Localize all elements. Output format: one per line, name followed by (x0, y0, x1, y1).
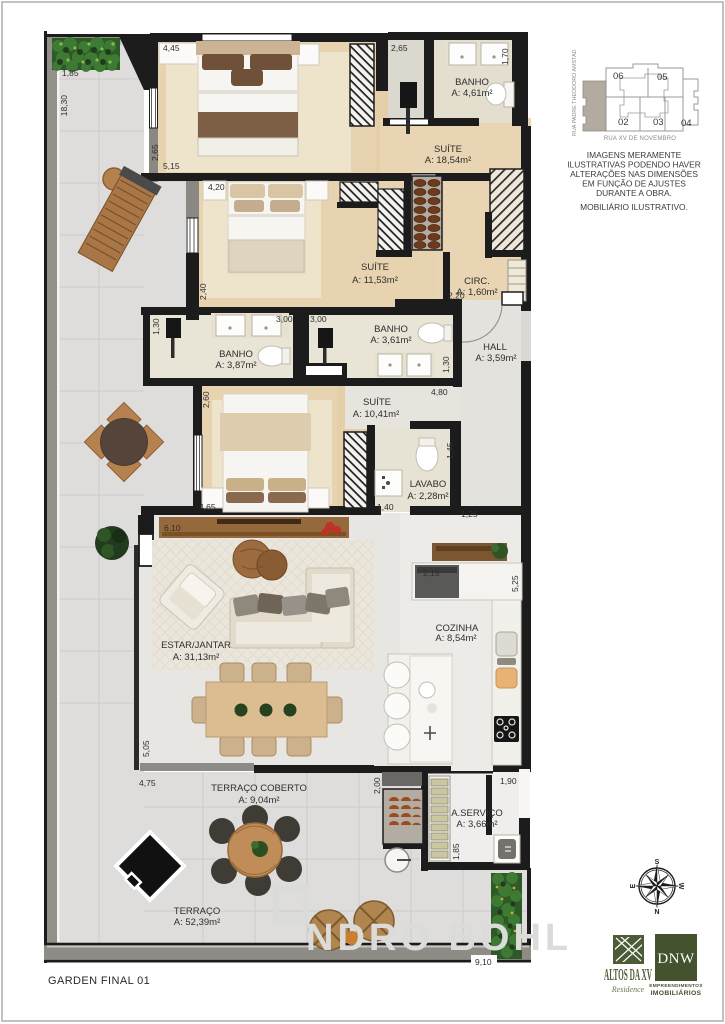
svg-text:05: 05 (657, 72, 668, 83)
svg-text:4,20: 4,20 (208, 182, 225, 192)
svg-text:2,65: 2,65 (150, 144, 160, 161)
svg-text:E: E (630, 883, 637, 888)
svg-text:1,30: 1,30 (151, 318, 161, 335)
svg-text:1,40: 1,40 (377, 502, 394, 512)
svg-text:EM FUNÇÃO DE AJUSTES: EM FUNÇÃO DE AJUSTES (582, 179, 686, 189)
svg-text:DURANTE A OBRA.: DURANTE A OBRA. (596, 188, 672, 198)
svg-text:2,40: 2,40 (198, 283, 208, 300)
svg-text:SUÍTE: SUÍTE (363, 397, 391, 408)
svg-text:4,45: 4,45 (163, 43, 180, 53)
svg-text:1,85: 1,85 (62, 68, 79, 78)
svg-text:LAVABO: LAVABO (410, 479, 447, 490)
svg-text:A: 3,59m²: A: 3,59m² (475, 353, 516, 364)
svg-text:A: 3,61m²: A: 3,61m² (370, 335, 411, 346)
svg-text:ESTAR/JANTAR: ESTAR/JANTAR (161, 640, 231, 651)
svg-text:2,60: 2,60 (201, 391, 211, 408)
svg-text:03: 03 (653, 117, 664, 128)
svg-text:6,10: 6,10 (164, 523, 181, 533)
svg-text:2,15: 2,15 (423, 568, 440, 578)
svg-text:04: 04 (681, 118, 692, 129)
svg-text:SUÍTE: SUÍTE (434, 144, 462, 155)
svg-text:CIRC.: CIRC. (464, 276, 490, 287)
svg-text:5,05: 5,05 (141, 740, 151, 757)
svg-text:W: W (677, 883, 684, 890)
svg-text:4,65: 4,65 (199, 502, 216, 512)
svg-text:A: 3,87m²: A: 3,87m² (215, 360, 256, 371)
svg-text:IMAGENS MERAMENTE: IMAGENS MERAMENTE (587, 150, 682, 160)
svg-text:2,65: 2,65 (391, 43, 408, 53)
svg-text:TERRAÇO COBERTO: TERRAÇO COBERTO (211, 783, 307, 794)
svg-text:1,25: 1,25 (461, 509, 478, 519)
svg-text:A.SERVIÇO: A.SERVIÇO (451, 808, 503, 819)
svg-text:S: S (655, 859, 660, 866)
svg-text:A: 52,39m²: A: 52,39m² (174, 917, 220, 928)
svg-text:1,90: 1,90 (500, 776, 517, 786)
svg-text:3,00: 3,00 (310, 314, 327, 324)
svg-text:TERRAÇO: TERRAÇO (174, 906, 220, 917)
svg-text:DNW: DNW (657, 951, 695, 967)
svg-text:06: 06 (613, 71, 624, 82)
svg-text:SUÍTE: SUÍTE (361, 262, 389, 273)
svg-text:A: 10,41m²: A: 10,41m² (353, 409, 399, 420)
svg-text:MOBILIÁRIO ILUSTRATIVO.: MOBILIÁRIO ILUSTRATIVO. (580, 202, 688, 212)
svg-text:A: 11,53m²: A: 11,53m² (352, 275, 398, 286)
svg-text:3,00: 3,00 (276, 314, 293, 324)
svg-text:1,85: 1,85 (451, 843, 461, 860)
svg-text:BANHO: BANHO (219, 349, 253, 360)
svg-text:RUA XV DE NOVEMBRO: RUA XV DE NOVEMBRO (604, 136, 676, 142)
svg-text:BANHO: BANHO (374, 324, 408, 335)
svg-text:18,30: 18,30 (59, 95, 69, 117)
svg-text:A: 2,28m²: A: 2,28m² (407, 491, 448, 502)
svg-text:IMOBILIÁRIOS: IMOBILIÁRIOS (651, 988, 702, 997)
svg-text:NDRO BOHL: NDRO BOHL (306, 917, 572, 959)
svg-text:N: N (654, 907, 659, 914)
svg-text:1,70: 1,70 (500, 48, 510, 65)
svg-text:A: 18,54m²: A: 18,54m² (425, 155, 471, 166)
svg-text:BANHO: BANHO (455, 77, 489, 88)
svg-text:A: 3,66m²: A: 3,66m² (456, 819, 497, 830)
svg-text:1,30: 1,30 (441, 356, 451, 373)
svg-text:A: 4,61m²: A: 4,61m² (451, 88, 492, 99)
svg-text:A: 9,04m²: A: 9,04m² (238, 795, 279, 806)
svg-text:GARDEN FINAL 01: GARDEN FINAL 01 (48, 975, 150, 987)
svg-text:4,75: 4,75 (139, 778, 156, 788)
svg-text:4,80: 4,80 (431, 387, 448, 397)
svg-text:5,25: 5,25 (510, 575, 520, 592)
svg-text:Residence: Residence (611, 985, 645, 994)
svg-text:ILUSTRATIVAS PODENDO HAVER: ILUSTRATIVAS PODENDO HAVER (567, 160, 701, 170)
svg-text:A: 31,13m²: A: 31,13m² (173, 652, 219, 663)
svg-text:1,45: 1,45 (445, 442, 455, 459)
svg-text:02: 02 (618, 117, 629, 128)
svg-text:A: 8,54m²: A: 8,54m² (435, 633, 476, 644)
svg-text:HALL: HALL (483, 342, 507, 353)
svg-text:2,20: 2,20 (448, 291, 465, 301)
svg-text:5,15: 5,15 (163, 161, 180, 171)
svg-text:ALTOS DA XV: ALTOS DA XV (604, 965, 652, 984)
svg-text:EMPREENDIMENTOS: EMPREENDIMENTOS (649, 983, 703, 989)
svg-text:2,00: 2,00 (372, 777, 382, 794)
svg-text:ALTERAÇÕES NAS DIMENSÕES: ALTERAÇÕES NAS DIMENSÕES (570, 169, 698, 179)
svg-text:RUA PADRE THEODORO AMSTAD: RUA PADRE THEODORO AMSTAD (572, 49, 578, 136)
